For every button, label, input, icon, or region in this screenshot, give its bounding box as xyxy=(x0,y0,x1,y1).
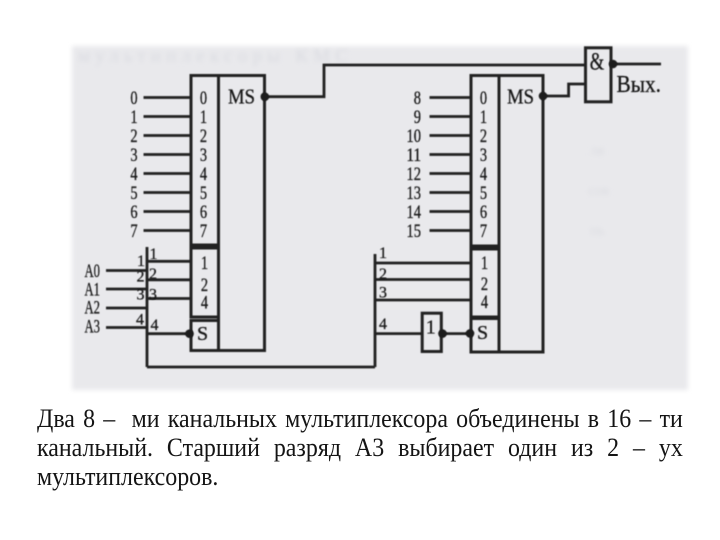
svg-text:4: 4 xyxy=(200,164,208,185)
svg-text:7: 7 xyxy=(480,221,487,242)
svg-text:2: 2 xyxy=(149,266,157,283)
svg-text:15: 15 xyxy=(407,221,422,242)
svg-text:4: 4 xyxy=(151,317,159,334)
svg-text:4: 4 xyxy=(481,292,489,313)
svg-text:8: 8 xyxy=(414,88,421,109)
svg-text:лв: лв xyxy=(590,143,605,159)
svg-text:6: 6 xyxy=(200,202,207,223)
svg-text:1: 1 xyxy=(426,317,436,339)
svg-text:0: 0 xyxy=(130,88,137,109)
svg-text:&: & xyxy=(590,49,605,76)
svg-text:S: S xyxy=(477,322,488,344)
svg-text:1: 1 xyxy=(137,253,145,270)
svg-text:3: 3 xyxy=(480,145,487,166)
svg-text:6: 6 xyxy=(130,202,137,223)
svg-text:5: 5 xyxy=(480,183,487,204)
svg-text:2: 2 xyxy=(480,126,487,147)
svg-text:7: 7 xyxy=(200,221,207,242)
svg-text:Вых.: Вых. xyxy=(617,72,662,98)
svg-text:0: 0 xyxy=(200,88,207,109)
svg-text:1: 1 xyxy=(481,253,488,274)
svg-text:А2: А2 xyxy=(85,298,101,319)
svg-text:4: 4 xyxy=(130,164,138,185)
svg-text:3: 3 xyxy=(137,287,145,304)
svg-text:1: 1 xyxy=(480,107,487,128)
svg-text:2: 2 xyxy=(379,266,387,283)
svg-text:4: 4 xyxy=(201,293,209,314)
svg-text:4: 4 xyxy=(379,316,387,333)
svg-text:6: 6 xyxy=(480,202,487,223)
svg-text:2: 2 xyxy=(137,269,145,286)
svg-text:1: 1 xyxy=(150,246,158,263)
svg-text:3: 3 xyxy=(130,145,137,166)
svg-text:11: 11 xyxy=(407,145,422,166)
svg-text:А3: А3 xyxy=(85,317,101,338)
svg-text:14: 14 xyxy=(407,202,422,223)
svg-text:5: 5 xyxy=(130,183,137,204)
svg-text:2: 2 xyxy=(130,126,137,147)
svg-text:1: 1 xyxy=(130,107,137,128)
svg-text:1: 1 xyxy=(200,107,207,128)
svg-text:12: 12 xyxy=(407,164,422,185)
svg-text:1: 1 xyxy=(201,253,208,274)
svg-text:13: 13 xyxy=(407,183,422,204)
svg-text:4: 4 xyxy=(480,164,488,185)
svg-text:3: 3 xyxy=(149,286,157,303)
svg-text:5: 5 xyxy=(200,183,207,204)
svg-text:MS: MS xyxy=(507,85,534,109)
svg-text:3: 3 xyxy=(379,285,387,302)
svg-text:7: 7 xyxy=(130,221,137,242)
svg-text:1: 1 xyxy=(379,245,387,262)
svg-text:S: S xyxy=(197,323,208,345)
svg-text:пь: пь xyxy=(590,223,605,239)
svg-text:9: 9 xyxy=(414,107,421,128)
svg-text:мультиплексоры КМС: мультиплексоры КМС xyxy=(78,46,348,67)
svg-text:0: 0 xyxy=(480,88,487,109)
svg-text:3: 3 xyxy=(200,145,207,166)
svg-text:2: 2 xyxy=(200,126,207,147)
svg-text:4: 4 xyxy=(136,312,144,329)
svg-text:10: 10 xyxy=(407,126,422,147)
svg-text:MS: MS xyxy=(228,85,255,109)
svg-text:сов: сов xyxy=(588,183,609,199)
